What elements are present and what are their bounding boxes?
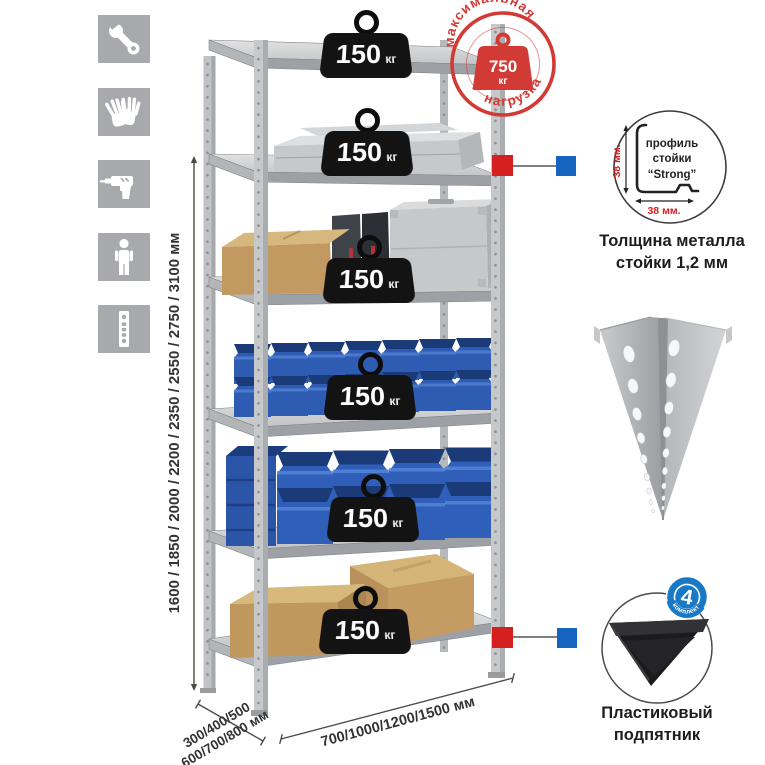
weight-handle [357, 235, 382, 260]
shelf4-load-weight: 150кг [326, 352, 414, 419]
shelf1-load-weight: 150кг [322, 10, 410, 77]
weight-handle [358, 352, 383, 377]
load-unit: кг [388, 277, 400, 291]
blue-marker [557, 628, 577, 648]
stamp-unit: кг [498, 76, 507, 87]
product-infographic: 1600 / 1850 / 2000 / 2200 / 2350 / 2550 … [0, 0, 765, 765]
load-unit: кг [392, 516, 404, 530]
load-unit: кг [386, 150, 398, 164]
weight-handle [361, 474, 386, 499]
weight-handle [353, 586, 378, 611]
load-value: 150 [335, 41, 382, 67]
blue-marker [556, 156, 576, 176]
weight-handle [355, 108, 380, 133]
profile-label-1: профиль [646, 138, 699, 150]
stamp-value: 750 [489, 57, 517, 76]
foot-callout-connector [492, 627, 577, 648]
profile-dim-vertical: 38 мм. [611, 144, 623, 177]
load-value: 150 [336, 139, 383, 165]
shelf2-load-weight: 150кг [323, 108, 411, 175]
red-marker [492, 155, 513, 176]
svg-text:максимальная: максимальная [428, 0, 540, 52]
caption-line: Пластиковый [563, 703, 751, 725]
load-value: 150 [342, 505, 389, 531]
metal-thickness-caption: Толщина металла стойки 1,2 мм [578, 231, 765, 275]
height-dimension-line [191, 156, 197, 691]
caption-line: Толщина металла [578, 231, 765, 253]
load-value: 150 [338, 266, 385, 292]
load-unit: кг [384, 628, 396, 642]
profile-label-2: стойки [653, 153, 692, 165]
weight-handle [354, 10, 379, 35]
profile-callout-connector [492, 155, 576, 176]
shelf3-load-weight: 150кг [325, 235, 413, 302]
caption-line: стойки 1,2 мм [578, 253, 765, 275]
load-unit: кг [385, 52, 397, 66]
load-unit: кг [389, 394, 401, 408]
width-dimension-line [280, 673, 515, 744]
shelf6-load-weight: 150кг [321, 586, 409, 653]
profile-label-3: “Strong” [648, 169, 697, 181]
load-value: 150 [339, 383, 386, 409]
plastic-foot-caption: Пластиковый подпятник [563, 703, 751, 747]
profile-dim-horizontal: 38 мм. [647, 205, 680, 217]
height-dimension-label: 1600 / 1850 / 2000 / 2200 / 2350 / 2550 … [166, 233, 183, 614]
red-marker [492, 627, 513, 648]
caption-line: подпятник [563, 725, 751, 747]
angle-post-image [594, 317, 732, 520]
shelf5-load-weight: 150кг [329, 474, 417, 541]
post-profile-detail: 38 мм. 38 мм. профиль стойки “Strong” [611, 111, 726, 223]
stamp-arc-top-text: максимальная [428, 0, 540, 52]
load-value: 150 [334, 617, 381, 643]
